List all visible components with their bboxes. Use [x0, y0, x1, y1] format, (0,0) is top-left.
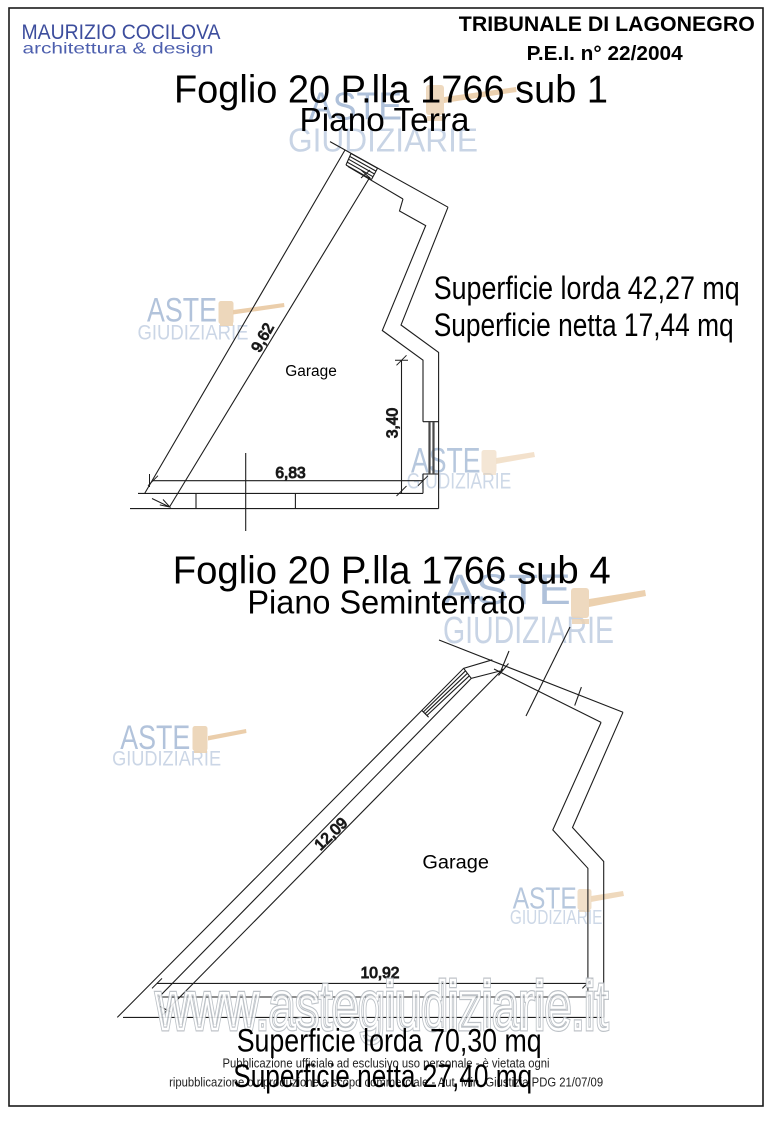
svg-text:Garage: Garage [285, 363, 337, 380]
svg-text:Superficie netta 27,40 mq: Superficie netta 27,40 mq [233, 1058, 532, 1094]
svg-text:TRIBUNALE DI LAGONEGRO: TRIBUNALE DI LAGONEGRO [459, 13, 755, 36]
svg-text:Superficie lorda 42,27 mq: Superficie lorda 42,27 mq [434, 270, 740, 306]
svg-text:Superficie netta 17,44 mq: Superficie netta 17,44 mq [434, 307, 734, 343]
svg-text:Superficie lorda 70,30 mq: Superficie lorda 70,30 mq [237, 1023, 542, 1059]
svg-text:Garage: Garage [422, 853, 489, 874]
svg-text:3,40: 3,40 [385, 408, 402, 439]
svg-text:P.E.I. n° 22/2004: P.E.I. n° 22/2004 [527, 43, 684, 65]
svg-text:architettura & design: architettura & design [23, 41, 214, 58]
svg-text:Piano Terra: Piano Terra [300, 101, 471, 138]
svg-text:6,83: 6,83 [275, 465, 305, 482]
svg-text:Piano Seminterrato: Piano Seminterrato [247, 584, 525, 621]
